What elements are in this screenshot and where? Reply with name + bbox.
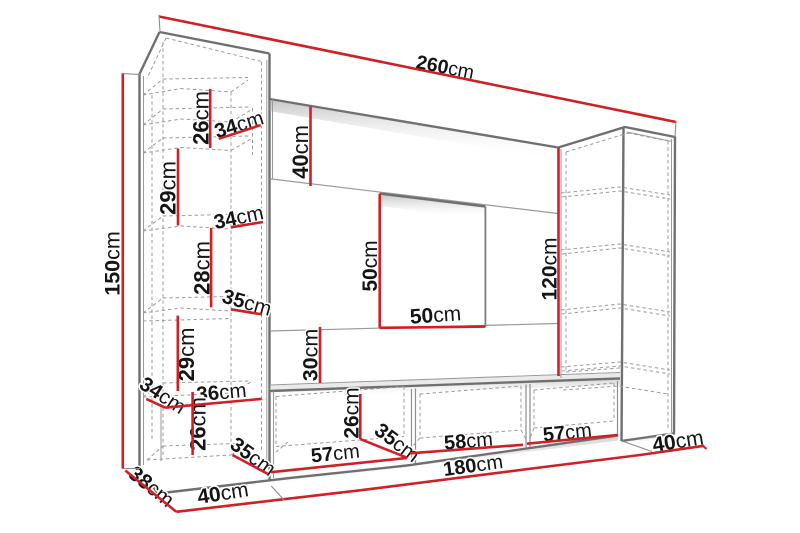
svg-text:150cm: 150cm (101, 231, 125, 296)
svg-text:35cm: 35cm (220, 285, 275, 321)
svg-text:38cm: 38cm (124, 462, 178, 512)
svg-text:50cm: 50cm (409, 302, 462, 329)
svg-text:34cm: 34cm (212, 201, 266, 234)
